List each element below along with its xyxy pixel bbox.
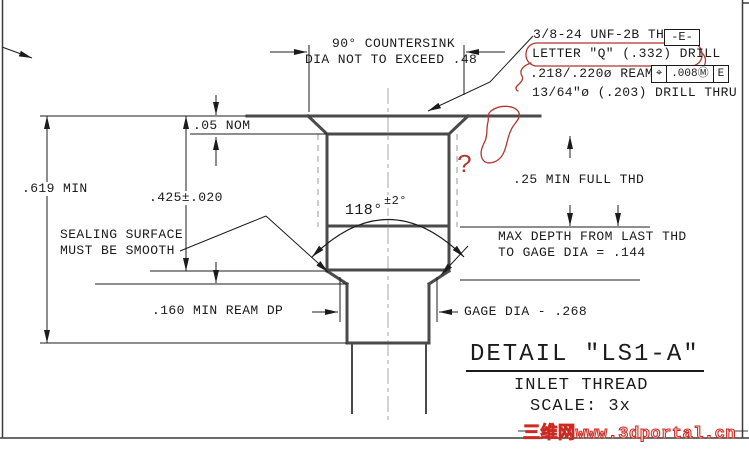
dim-gage-dia: GAGE DIA - .268 [462, 305, 589, 319]
center-and-thread-lines [318, 88, 457, 420]
position-symbol: ⌖ [652, 66, 666, 82]
max-depth-note-line2: TO GAGE DIA = .144 [498, 246, 646, 260]
dim-25-min-full-thd: .25 MIN FULL THD [511, 173, 646, 187]
thread-spec-note: 3/8-24 UNF-2B THD [533, 28, 672, 42]
drill-q-note: LETTER "Q" (.332) DRILL [532, 47, 721, 61]
drill-thru-note: 13/64"ø (.203) DRILL THRU [532, 86, 737, 100]
countersink-note-line2: DIA NOT TO EXCEED .48 [305, 53, 477, 67]
dim-angle-118: 118° [343, 203, 385, 219]
countersink-note-line1: 90° COUNTERSINK [332, 37, 455, 51]
dim-425-tol: .425±.020 [147, 191, 225, 205]
red-question-mark: ? [457, 152, 473, 179]
sealing-note-line1: SEALING SURFACE [60, 228, 183, 242]
watermark-text: 三维网www.3dportal.cn [523, 426, 736, 444]
dim-angle-tol: ±2° [382, 195, 409, 208]
sealing-note-line2: MUST BE SMOOTH [60, 244, 175, 258]
ream-note: .218/.220ø REAM [530, 67, 653, 81]
dim-619-min: .619 MIN [20, 182, 90, 196]
dim-160-ream-dp: .160 MIN REAM DP [150, 304, 285, 318]
datum-e-flag: -E- [664, 29, 700, 46]
engineering-drawing: 90° COUNTERSINK DIA NOT TO EXCEED .48 3/… [0, 0, 749, 450]
fcf-tolerance: .008Ⓜ [666, 66, 712, 82]
max-depth-note-line1: MAX DEPTH FROM LAST THD [498, 230, 687, 244]
detail-title: DETAIL "LS1-A" [466, 342, 704, 372]
detail-scale: SCALE: 3x [530, 398, 631, 416]
red-squiggle-mark [516, 63, 531, 91]
feature-control-frame: ⌖ .008Ⓜ E [651, 65, 729, 83]
fcf-datum: E [713, 66, 729, 82]
dim-05-nom: .05 NOM [191, 119, 252, 133]
detail-subtitle: INLET THREAD [514, 377, 648, 395]
